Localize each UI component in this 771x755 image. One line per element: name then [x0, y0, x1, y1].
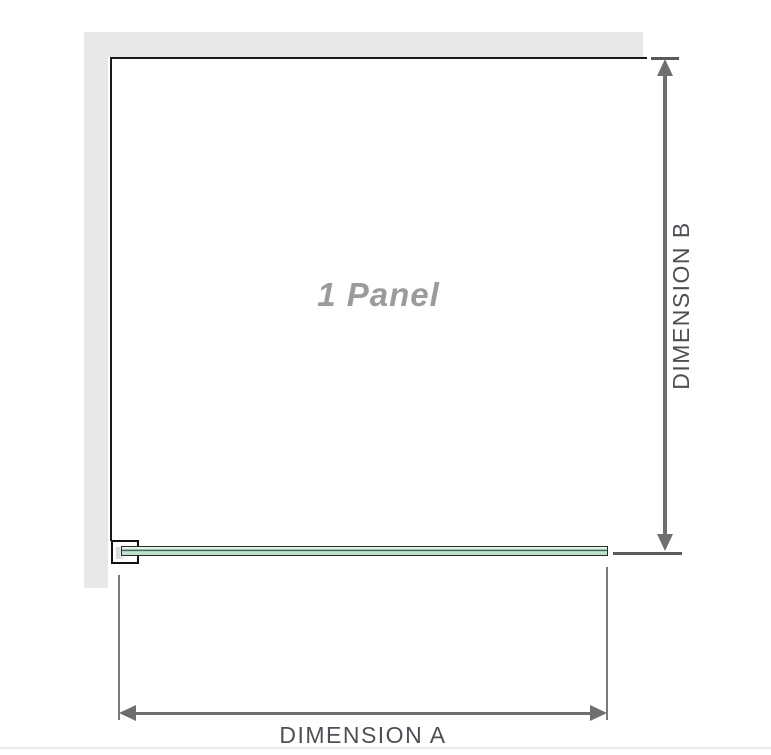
dimension-a-extension-right [606, 567, 608, 720]
page-bottom-divider [0, 747, 771, 749]
wall-left-strip [84, 32, 108, 588]
panel-count-label: 1 Panel [110, 276, 647, 314]
dimension-a-extension-left [118, 575, 120, 720]
dimension-a-arrow-left-icon [119, 705, 136, 721]
glass-panel-bar [121, 546, 608, 556]
dimension-a-arrow-right-icon [590, 705, 607, 721]
dimension-a-line [134, 712, 592, 715]
dimension-a-label: DIMENSION A [110, 722, 616, 749]
shower-panel-diagram: 1 Panel DIMENSION B DIMENSION A [0, 0, 771, 755]
dimension-b-line [663, 76, 667, 534]
dimension-b-label: DIMENSION B [668, 58, 695, 553]
wall-top-strip [84, 32, 643, 57]
panel-outline-top-edge [110, 57, 647, 59]
